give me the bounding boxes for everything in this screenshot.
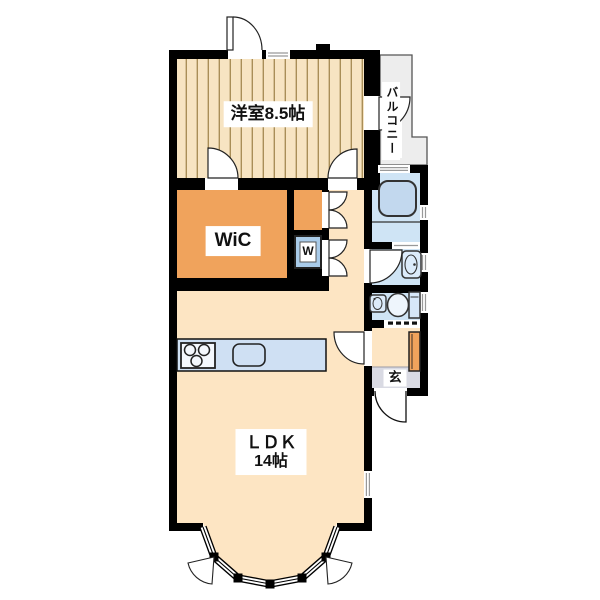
casement-swing <box>188 557 214 584</box>
wic-label: WiC <box>206 226 261 256</box>
closet-floor <box>294 190 322 230</box>
toilet-hand-sink-icon <box>370 295 386 312</box>
ldk-label: ＬＤＫ 14帖 <box>236 429 307 475</box>
vanity-sink-icon <box>402 251 421 278</box>
ldk-name: ＬＤＫ <box>246 433 297 453</box>
ldk-size: 14帖 <box>246 453 297 471</box>
toilet-icon <box>388 292 421 318</box>
washer-label: W <box>300 245 315 259</box>
bathtub-icon <box>379 181 416 216</box>
floor-plan: 洋室8.5帖 バルコニー WiC W ＬＤＫ 14帖 玄 <box>0 0 600 600</box>
entrance-label: 玄 <box>383 370 406 387</box>
shoe-cabinet <box>409 332 420 371</box>
bedroom-label: 洋室8.5帖 <box>224 101 313 127</box>
stove-icon <box>181 343 215 368</box>
floor-plan-drawing <box>0 0 600 600</box>
casement-swing <box>326 557 352 584</box>
balcony-label: バルコニー <box>382 82 400 160</box>
bedroom-north-door-swing <box>227 17 262 50</box>
